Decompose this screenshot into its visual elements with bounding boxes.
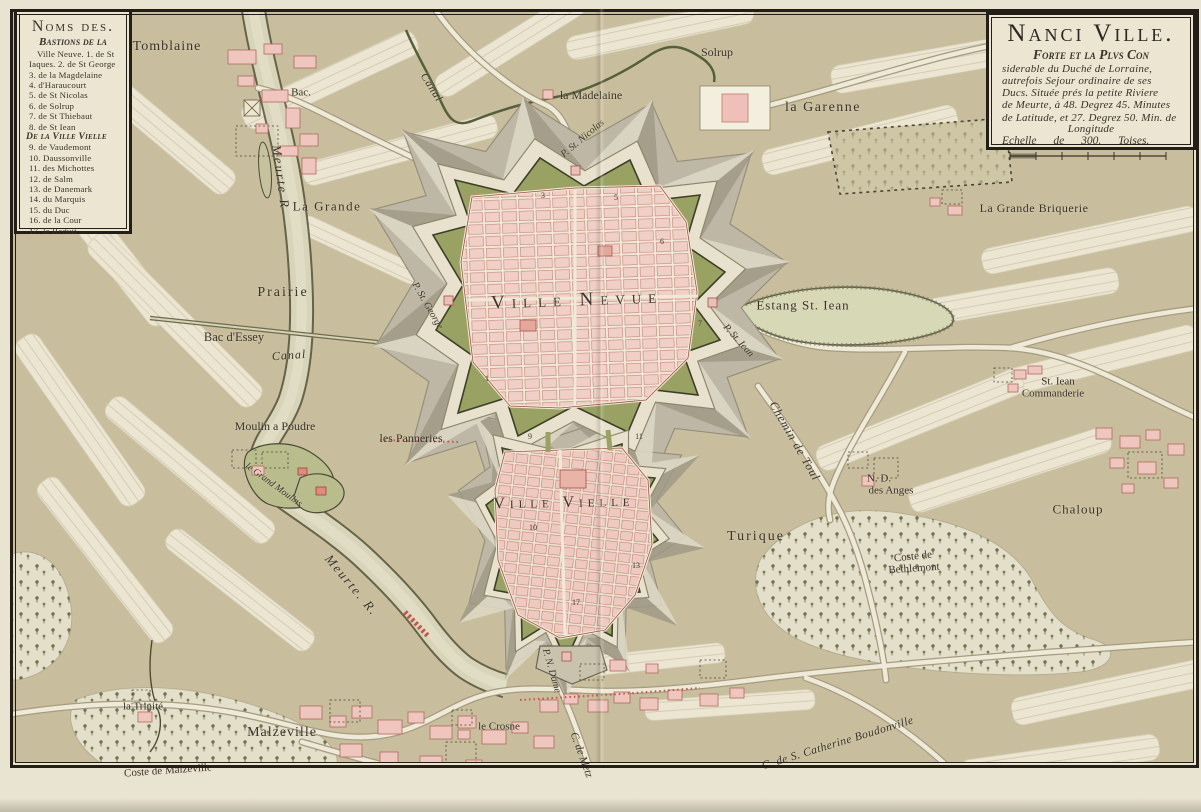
east-gate xyxy=(708,298,717,307)
title-line-longitude: Longitude xyxy=(996,124,1186,135)
label-st-jean-commanderie-1: St. Iean xyxy=(1041,377,1075,388)
map-sheet: Tomblaine Bac. Canal la Madelaine Solrup… xyxy=(0,0,1201,812)
label-solrup: Solrup xyxy=(701,46,733,58)
legend-item: 9. de Vaudemont xyxy=(24,142,122,152)
palace-block xyxy=(560,470,586,488)
settlement-solrup xyxy=(700,86,770,130)
bastion-number-10: 10 xyxy=(529,524,537,532)
scale-bar xyxy=(1006,151,1176,161)
legend-items: Ville Neuve. 1. de St Iaques. 2. de St G… xyxy=(24,49,122,236)
bastion-number-3: 3 xyxy=(541,192,545,200)
north-gate xyxy=(571,166,580,175)
label-prairie: Prairie xyxy=(257,286,308,300)
label-bac: Bac. xyxy=(291,88,311,99)
title-line: autrefois Sejour ordinaire de ses xyxy=(996,75,1186,87)
label-les-panneries: les Panneries xyxy=(380,432,443,444)
legend-section-header: De la Ville Vielle xyxy=(24,132,122,142)
legend-item: 3. de la Magdelaine xyxy=(24,70,122,80)
title-line: de Meurte, à 48. Degrez 45. Minutes xyxy=(996,99,1186,111)
title-line: Ducs. Située prés la petite Riviere xyxy=(996,87,1186,99)
bastion-number-17: 17 xyxy=(572,599,580,607)
legend-title: Noms des. xyxy=(24,18,122,36)
legend-item: 5. de St Nicolas xyxy=(24,90,122,100)
label-la-madelaine: la Madelaine xyxy=(560,89,622,101)
label-la-trinite: la Trinité xyxy=(123,702,163,713)
title-cartouche: Nanci Ville. Forte et la Plvs Con sidera… xyxy=(986,12,1196,150)
legend-subtitle: Bastions de la xyxy=(24,36,122,48)
label-moulin-a-poudre: Moulin a Poudre xyxy=(235,420,316,432)
legend-item: 12. de Salm xyxy=(24,174,122,184)
title-line: de Latitude, et 27. Degrez 50. Min. de xyxy=(996,112,1186,124)
label-estang-st-jean: Estang St. Iean xyxy=(756,299,849,312)
legend-item: 10. Daussonville xyxy=(24,153,122,163)
legend-item: 11. des Michottes xyxy=(24,163,122,173)
legend-item: 6. de Solrup xyxy=(24,101,122,111)
legend-item: Ville Neuve. 1. de St xyxy=(24,49,122,59)
label-malzeville: Malzeville xyxy=(247,726,317,740)
label-la-garenne: la Garenne xyxy=(785,101,861,115)
bastion-number-5: 5 xyxy=(614,194,618,202)
label-ville-vieille: Ville Vielle xyxy=(493,494,634,512)
bastion-number-1: 1 xyxy=(485,375,489,383)
legend-item: 4. d'Haraucourt xyxy=(24,80,122,90)
south-gate xyxy=(562,652,571,661)
label-canal-west: Canal xyxy=(271,348,306,362)
legend-cartouche: Noms des. Bastions de la Ville Neuve. 1.… xyxy=(14,9,132,234)
west-gate xyxy=(444,296,453,305)
bastion-number-13: 13 xyxy=(632,562,640,570)
legend-inner: Noms des. Bastions de la Ville Neuve. 1.… xyxy=(19,14,127,229)
bastion-number-7: 7 xyxy=(698,320,702,328)
label-chaloup: Chaloup xyxy=(1052,503,1103,516)
settlement-madelaine xyxy=(543,90,553,99)
label-st-jean-commanderie-2: Commanderie xyxy=(1022,389,1084,400)
label-le-crosne: le Crosne xyxy=(478,722,520,733)
legend-item: 14. du Marquis xyxy=(24,194,122,204)
label-grande-briquerie: La Grande Briquerie xyxy=(980,202,1089,214)
bastion-number-6: 6 xyxy=(660,238,664,246)
scale-label: Echelle de 300. Toises. xyxy=(996,135,1186,148)
label-bac-dessey: Bac d'Essey xyxy=(204,331,264,344)
title-inner: Nanci Ville. Forte et la Plvs Con sidera… xyxy=(991,17,1191,145)
bastion-number-11: 11 xyxy=(635,433,643,441)
legend-item: 16. de la Cour xyxy=(24,215,122,225)
legend-item: 13. de Danemark xyxy=(24,184,122,194)
title-line: siderable du Duché de Lorraine, xyxy=(996,63,1186,75)
map-title: Nanci Ville. xyxy=(996,21,1186,47)
label-turique: Turique xyxy=(727,530,785,544)
label-nd-des-anges-2: des Anges xyxy=(869,486,914,497)
legend-item: 7. de St Thiebaut xyxy=(24,111,122,121)
legend-item: 15. du Duc xyxy=(24,205,122,215)
label-la-grande: La Grande xyxy=(293,200,362,213)
label-nd-des-anges-1: N. D. xyxy=(867,474,891,485)
legend-item: Iaques. 2. de St George xyxy=(24,59,122,69)
label-tomblaine: Tomblaine xyxy=(133,40,202,54)
map-subtitle: Forte et la Plvs Con xyxy=(996,47,1186,63)
bastion-number-9: 9 xyxy=(528,433,532,441)
legend-item: 17. le Reduit xyxy=(24,226,122,236)
title-description: siderable du Duché de Lorraine, autrefoi… xyxy=(996,63,1186,135)
